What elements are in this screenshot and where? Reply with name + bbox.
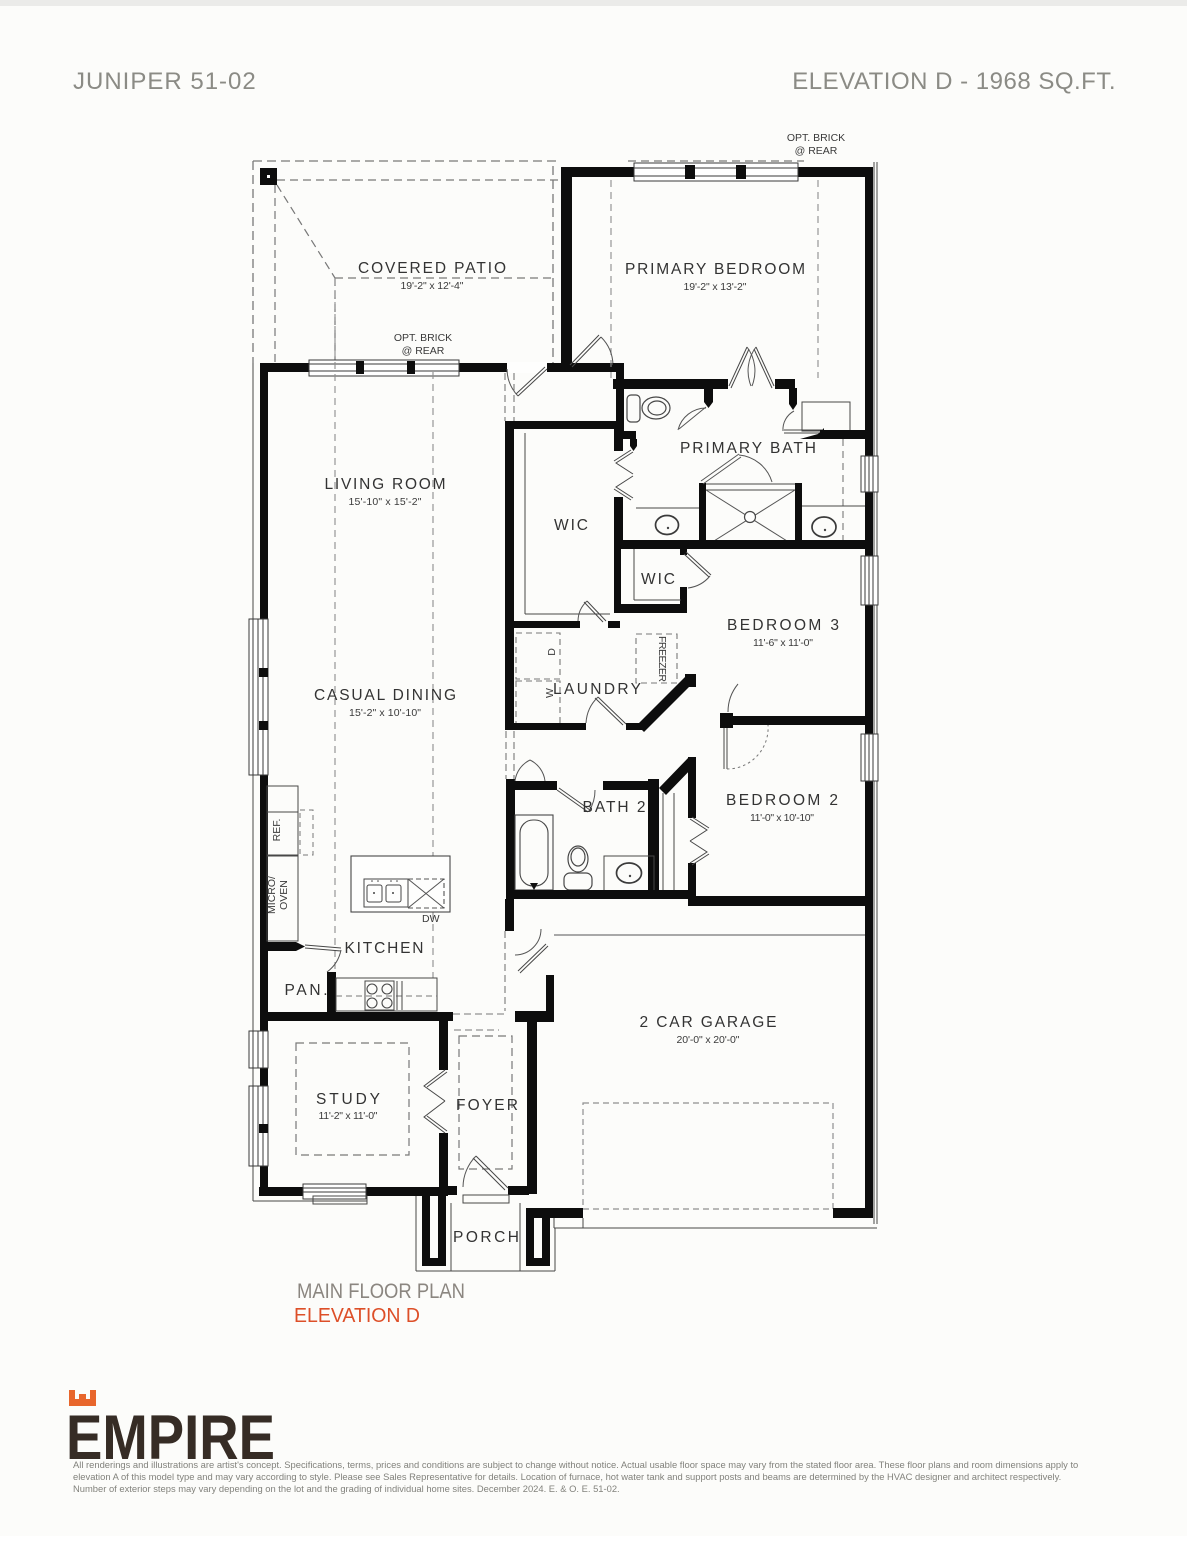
svg-text:19'-2" x 13'-2": 19'-2" x 13'-2": [684, 281, 747, 293]
svg-text:DW: DW: [422, 913, 440, 925]
svg-text:REF.: REF.: [271, 819, 283, 842]
svg-text:OPT. BRICK: OPT. BRICK: [787, 132, 845, 144]
svg-text:OPT. BRICK: OPT. BRICK: [394, 332, 452, 344]
svg-text:W: W: [544, 688, 556, 698]
svg-text:ELEVATION D: ELEVATION D: [294, 1305, 420, 1327]
svg-text:COVERED PATIO: COVERED PATIO: [358, 260, 506, 277]
svg-text:PORCH: PORCH: [453, 1229, 519, 1246]
svg-text:FREEZER: FREEZER: [656, 636, 668, 682]
svg-text:ELEVATION D - 1968 SQ.FT.: ELEVATION D - 1968 SQ.FT.: [792, 68, 1116, 95]
svg-text:PRIMARY BATH: PRIMARY BATH: [680, 440, 816, 457]
svg-text:2 CAR GARAGE: 2 CAR GARAGE: [640, 1014, 777, 1031]
svg-text:OVEN: OVEN: [278, 880, 290, 910]
svg-text:@ REAR: @ REAR: [402, 345, 445, 357]
svg-text:Number of exterior steps may v: Number of exterior steps may vary depend…: [73, 1483, 620, 1494]
svg-text:WIC: WIC: [554, 517, 588, 534]
svg-text:11'-0" x 10'-10": 11'-0" x 10'-10": [750, 812, 814, 824]
svg-text:LAUNDRY: LAUNDRY: [553, 681, 641, 698]
svg-text:BATH 2: BATH 2: [583, 799, 646, 816]
svg-text:MICRO/: MICRO/: [266, 876, 278, 914]
svg-text:11'-2" x 11'-0": 11'-2" x 11'-0": [319, 1110, 378, 1122]
svg-text:15'-2" x 10'-10": 15'-2" x 10'-10": [349, 707, 421, 719]
svg-text:FOYER: FOYER: [456, 1097, 518, 1114]
svg-text:D: D: [546, 648, 558, 656]
svg-text:11'-6" x 11'-0": 11'-6" x 11'-0": [753, 637, 813, 649]
svg-text:MAIN FLOOR PLAN: MAIN FLOOR PLAN: [297, 1280, 465, 1303]
svg-text:WIC: WIC: [641, 571, 675, 588]
svg-text:PRIMARY BEDROOM: PRIMARY BEDROOM: [625, 261, 805, 278]
svg-text:@ REAR: @ REAR: [795, 145, 838, 157]
svg-text:19'-2" x 12'-4": 19'-2" x 12'-4": [401, 280, 464, 292]
svg-text:JUNIPER 51-02: JUNIPER 51-02: [73, 68, 257, 95]
svg-text:All renderings and illustratio: All renderings and illustrations are art…: [73, 1459, 1078, 1470]
svg-text:LIVING ROOM: LIVING ROOM: [325, 476, 446, 493]
svg-text:KITCHEN: KITCHEN: [345, 940, 424, 957]
svg-text:15'-10" x 15'-2": 15'-10" x 15'-2": [349, 496, 422, 508]
svg-text:elevation A of this model type: elevation A of this model type and may v…: [73, 1471, 1061, 1482]
svg-text:20'-0" x 20'-0": 20'-0" x 20'-0": [677, 1034, 740, 1046]
svg-text:STUDY: STUDY: [316, 1091, 380, 1108]
